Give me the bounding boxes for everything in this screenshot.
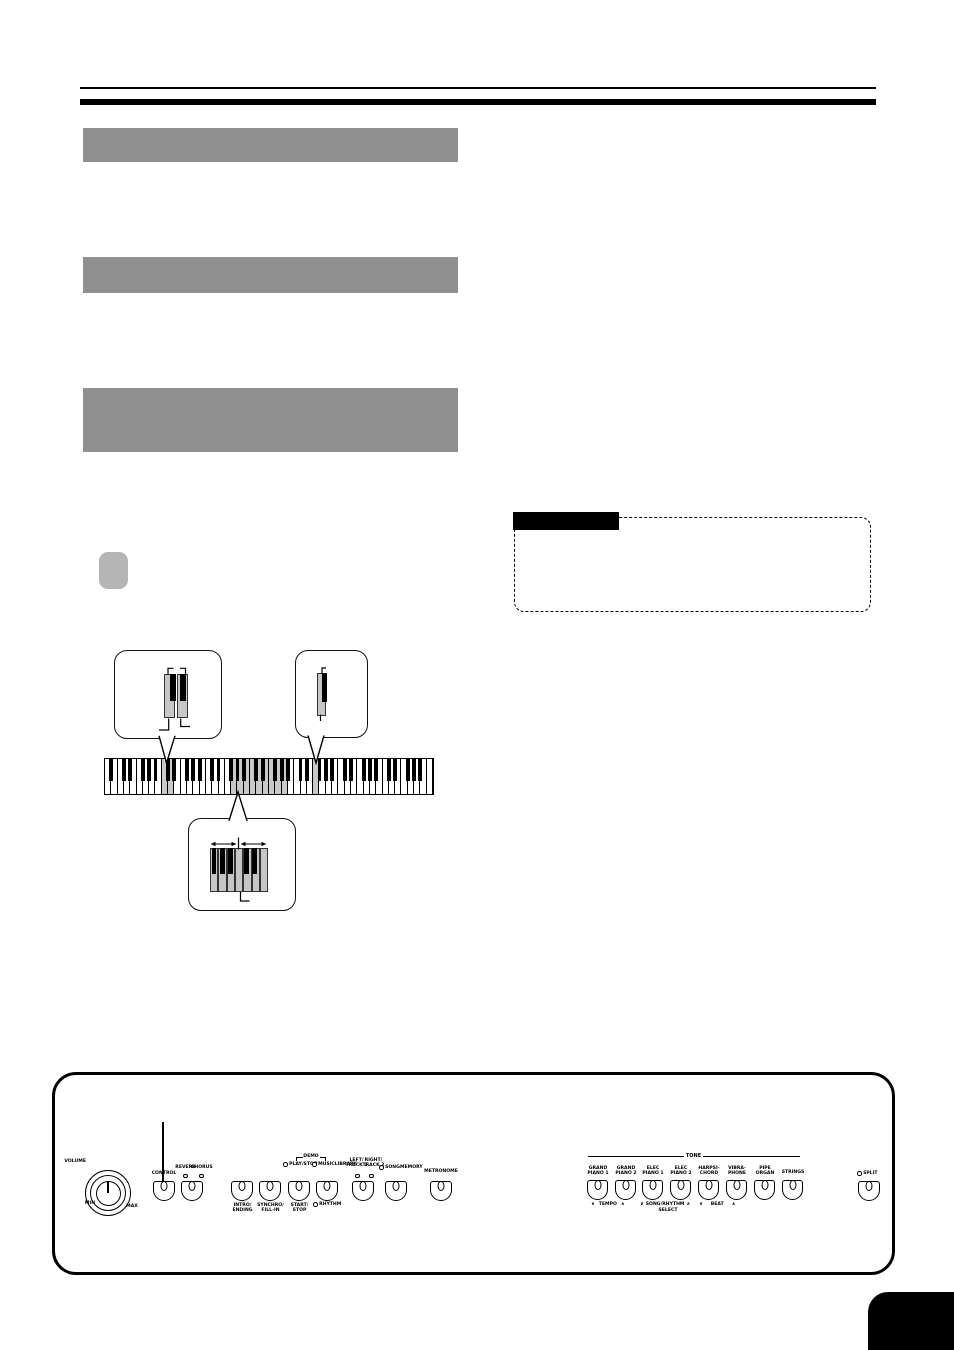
callout-tail — [229, 792, 247, 821]
tone-bracket-line — [703, 1156, 800, 1157]
black-key — [122, 759, 126, 781]
black-key — [147, 759, 151, 781]
demo-label: DEMO — [303, 1154, 320, 1159]
start-stop-label: START/STOP — [287, 1203, 312, 1213]
black-key — [286, 759, 290, 781]
tone-bracket-line — [588, 1156, 684, 1157]
synchro-fillin-label: SYNCHRO/FILL-IN — [257, 1203, 284, 1213]
black-key — [141, 759, 145, 781]
tempo-up-arrow: ∧ — [621, 1202, 625, 1207]
black-key — [412, 759, 416, 781]
black-key — [368, 759, 372, 781]
song-memory-label: SONGMEMORY — [379, 1165, 423, 1170]
black-key — [362, 759, 366, 781]
page-corner-tab — [868, 1292, 954, 1350]
black-key — [393, 759, 397, 781]
tone-group-label: TONE — [684, 1154, 703, 1159]
tone-button — [698, 1180, 719, 1200]
step-badge — [99, 552, 128, 589]
music-library-led — [312, 1162, 317, 1167]
beat-down-arrow: ∨ — [699, 1202, 703, 1207]
volume-label: VOLUME — [62, 1159, 86, 1164]
black-key — [242, 759, 246, 781]
song-rhythm-select-label: ∨ SONG/RHYTHM ∧ — [640, 1202, 690, 1207]
header-rule-thick — [80, 99, 876, 105]
tone-button — [726, 1180, 747, 1200]
volume-max-label: MAX — [124, 1204, 140, 1209]
black-key — [406, 759, 410, 781]
enlarged-black-key — [180, 674, 186, 701]
tone-label: STRINGS — [775, 1170, 811, 1175]
black-key — [343, 759, 347, 781]
manual-page: VOLUME MIN MAX CONTROL REVERB CHORUS DEM… — [0, 0, 954, 1350]
black-key — [273, 759, 277, 781]
black-key — [217, 759, 221, 781]
mini-black-key — [228, 848, 233, 874]
black-key — [330, 759, 334, 781]
callout-one-key — [295, 650, 368, 738]
chorus-label: CHORUS — [191, 1165, 212, 1170]
header-rule-thin — [80, 87, 876, 89]
enlarged-black-key — [170, 674, 176, 701]
black-key — [236, 759, 240, 781]
black-key — [172, 759, 176, 781]
black-key — [374, 759, 378, 781]
black-key — [418, 759, 422, 781]
black-key — [210, 759, 214, 781]
mini-black-key — [244, 848, 249, 874]
tone-button — [782, 1180, 803, 1200]
reverb-led — [183, 1174, 188, 1179]
black-key — [154, 759, 158, 781]
note-box — [514, 517, 871, 612]
mini-black-key — [252, 848, 257, 874]
tone-button — [754, 1180, 775, 1200]
note-label-bar — [513, 512, 619, 530]
volume-knob-pointer — [107, 1181, 109, 1193]
play-stop-led — [283, 1162, 288, 1167]
black-key — [324, 759, 328, 781]
select-label: SELECT — [656, 1208, 680, 1213]
control-button-label: CONTROL — [144, 1171, 184, 1176]
black-key — [254, 759, 258, 781]
right-track-led — [369, 1174, 374, 1179]
black-key — [198, 759, 202, 781]
rhythm-label: RHYTHM — [313, 1202, 341, 1207]
black-key — [318, 759, 322, 781]
black-key — [191, 759, 195, 781]
split-label: SPLIT — [857, 1171, 878, 1176]
tempo-controls-label: ∨ TEMPO ∧ — [591, 1202, 625, 1207]
split-led — [857, 1171, 862, 1176]
black-key — [185, 759, 189, 781]
mini-white-key — [260, 848, 268, 892]
section-heading-bar — [83, 388, 458, 452]
pointer-line — [162, 1122, 164, 1188]
select-up-arrow: ∧ — [687, 1202, 691, 1207]
tone-button — [615, 1180, 636, 1200]
mini-keyboard — [210, 848, 268, 892]
enlarged-black-key — [322, 673, 328, 702]
black-key — [166, 759, 170, 781]
black-key — [387, 759, 391, 781]
keyboard — [104, 758, 434, 795]
black-key — [128, 759, 132, 781]
beat-controls-label: ∨ BEAT ∧ — [699, 1202, 735, 1207]
chorus-led — [199, 1174, 204, 1179]
black-key — [229, 759, 233, 781]
section-heading-bar — [83, 257, 458, 293]
black-key — [280, 759, 284, 781]
section-heading-bar — [83, 128, 458, 162]
volume-min-label: MIN — [82, 1201, 98, 1206]
song-memory-led — [379, 1165, 384, 1170]
intro-ending-label: INTRO/ENDING — [230, 1203, 255, 1213]
mini-black-key — [220, 848, 225, 874]
black-key — [299, 759, 303, 781]
rhythm-led — [313, 1202, 318, 1207]
black-key — [349, 759, 353, 781]
left-track-led — [355, 1174, 360, 1179]
mini-white-key — [235, 848, 243, 892]
black-key — [109, 759, 113, 781]
white-key — [427, 759, 433, 794]
tone-button — [670, 1180, 691, 1200]
tempo-down-arrow: ∨ — [591, 1202, 595, 1207]
mini-black-key — [212, 848, 217, 874]
beat-up-arrow: ∧ — [732, 1202, 736, 1207]
black-key — [261, 759, 265, 781]
select-down-arrow: ∨ — [640, 1202, 644, 1207]
tone-button — [587, 1180, 608, 1200]
tone-button — [642, 1180, 663, 1200]
black-key — [305, 759, 309, 781]
metronome-label: METRONOME — [423, 1169, 459, 1174]
